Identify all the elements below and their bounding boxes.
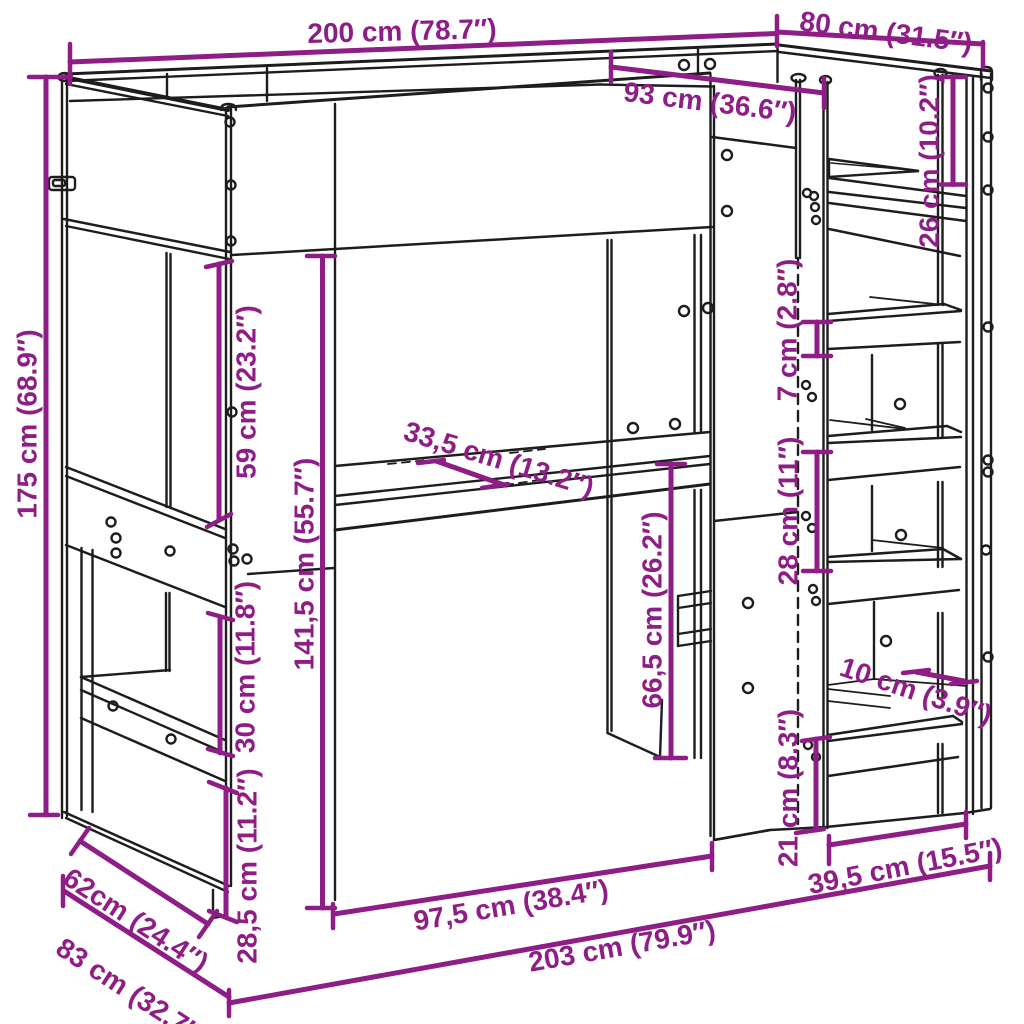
svg-text:21 cm (8.3″): 21 cm (8.3″) (773, 709, 804, 867)
svg-text:30 cm (11.8″): 30 cm (11.8″) (230, 581, 261, 753)
svg-text:175 cm (68.9″): 175 cm (68.9″) (12, 329, 43, 518)
svg-text:66,5 cm (26.2″): 66,5 cm (26.2″) (637, 511, 668, 708)
svg-text:26 cm (10.2″): 26 cm (10.2″) (914, 74, 945, 248)
svg-text:28 cm (11″): 28 cm (11″) (773, 437, 804, 586)
svg-text:28,5 cm (11.2″): 28,5 cm (11.2″) (232, 768, 263, 964)
svg-text:200 cm (78.7″): 200 cm (78.7″) (307, 13, 497, 49)
svg-text:141,5 cm (55.7″): 141,5 cm (55.7″) (289, 458, 320, 671)
svg-text:59 cm (23.2″): 59 cm (23.2″) (231, 305, 262, 479)
svg-text:7 cm (2.8″): 7 cm (2.8″) (772, 259, 803, 402)
